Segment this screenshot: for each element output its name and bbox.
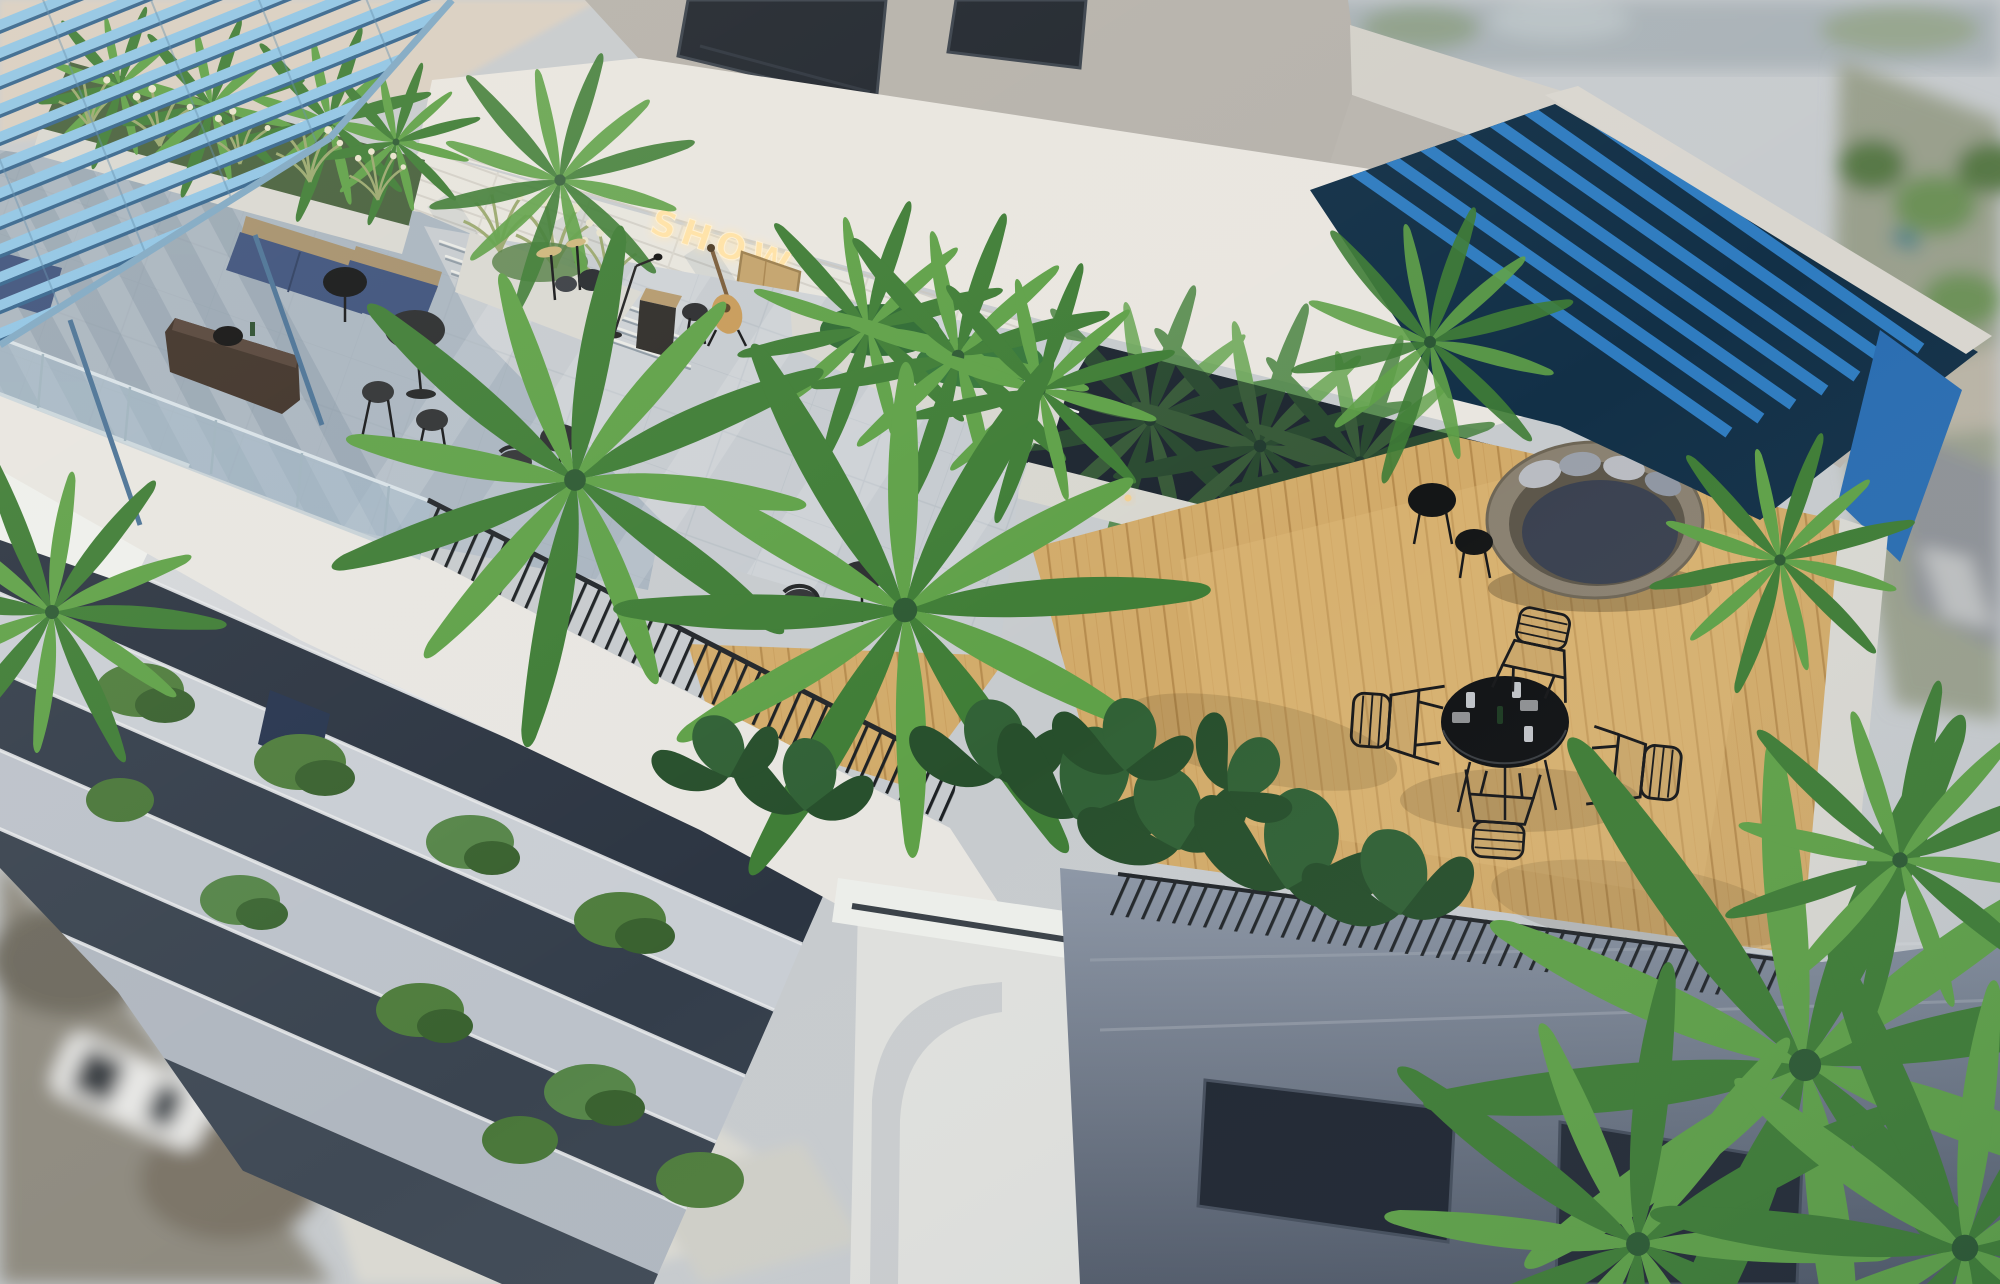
deck-light	[1125, 495, 1132, 502]
ice-bucket	[213, 326, 243, 346]
rooftop-render: SHOW	[0, 0, 2000, 1284]
glass	[1524, 726, 1533, 742]
napkin	[1452, 712, 1470, 723]
render-canvas: SHOW	[0, 0, 2000, 1284]
bottle	[250, 322, 255, 336]
glass	[1466, 692, 1475, 708]
bottle	[1497, 706, 1503, 724]
napkin	[1520, 700, 1538, 711]
